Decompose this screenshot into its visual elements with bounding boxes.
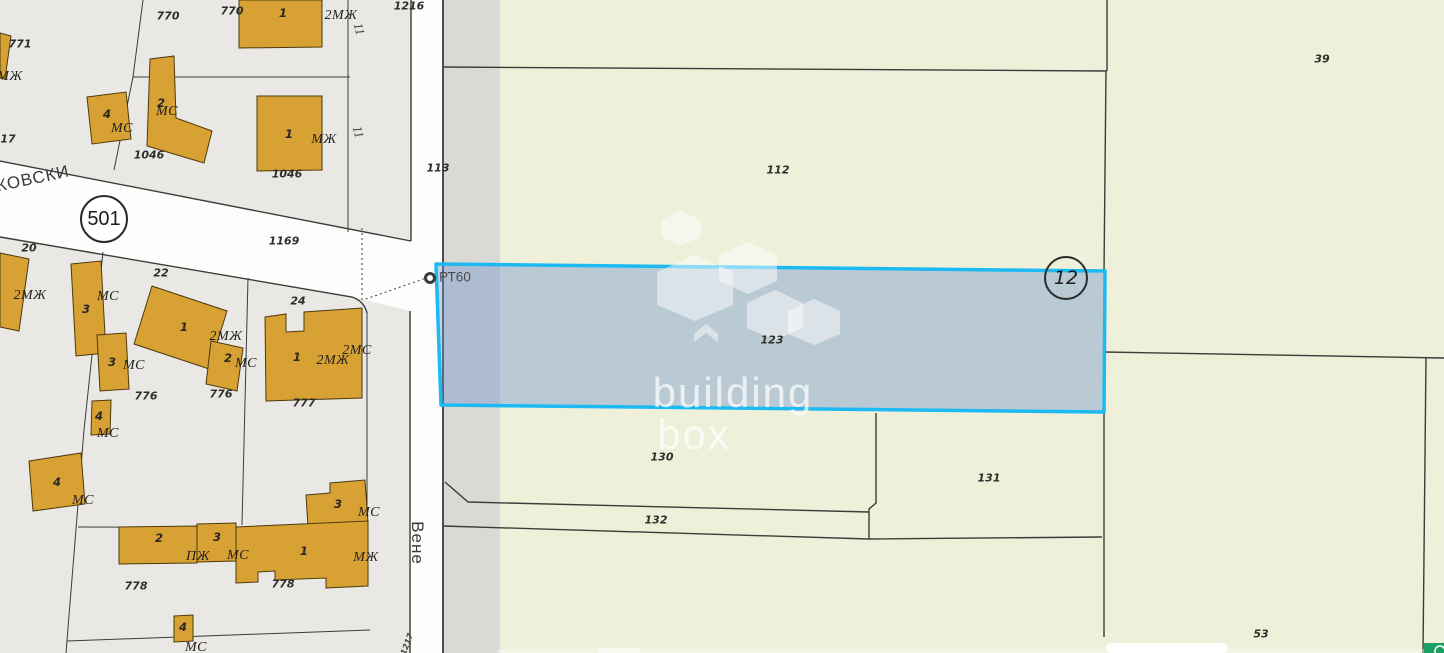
road-number-badge: 501 <box>80 195 128 243</box>
bottom-ui-pill <box>1106 643 1228 653</box>
selected-parcel-number-badge: 12 <box>1044 256 1088 300</box>
bottom-ui-pill <box>598 648 640 653</box>
building-footprint <box>236 521 368 588</box>
building-footprint <box>206 341 243 391</box>
building-footprint <box>239 0 322 48</box>
watermark-brand-line1: building <box>653 369 814 417</box>
survey-point-marker-icon <box>424 272 436 284</box>
building-footprint <box>174 615 193 642</box>
building-footprint <box>87 92 131 144</box>
building-footprint <box>97 333 129 391</box>
watermark-brand-line2: box <box>657 411 731 459</box>
map-canvas[interactable]: 501 12 building box КОВСКИВенеРТ60770770… <box>0 0 1444 653</box>
building-footprint <box>197 523 236 562</box>
building-footprint <box>257 96 322 171</box>
building-footprint <box>91 400 111 435</box>
building-footprint <box>29 453 85 511</box>
chat-button[interactable] <box>1424 643 1444 653</box>
building-footprint <box>265 308 362 401</box>
building-footprint <box>119 526 197 564</box>
